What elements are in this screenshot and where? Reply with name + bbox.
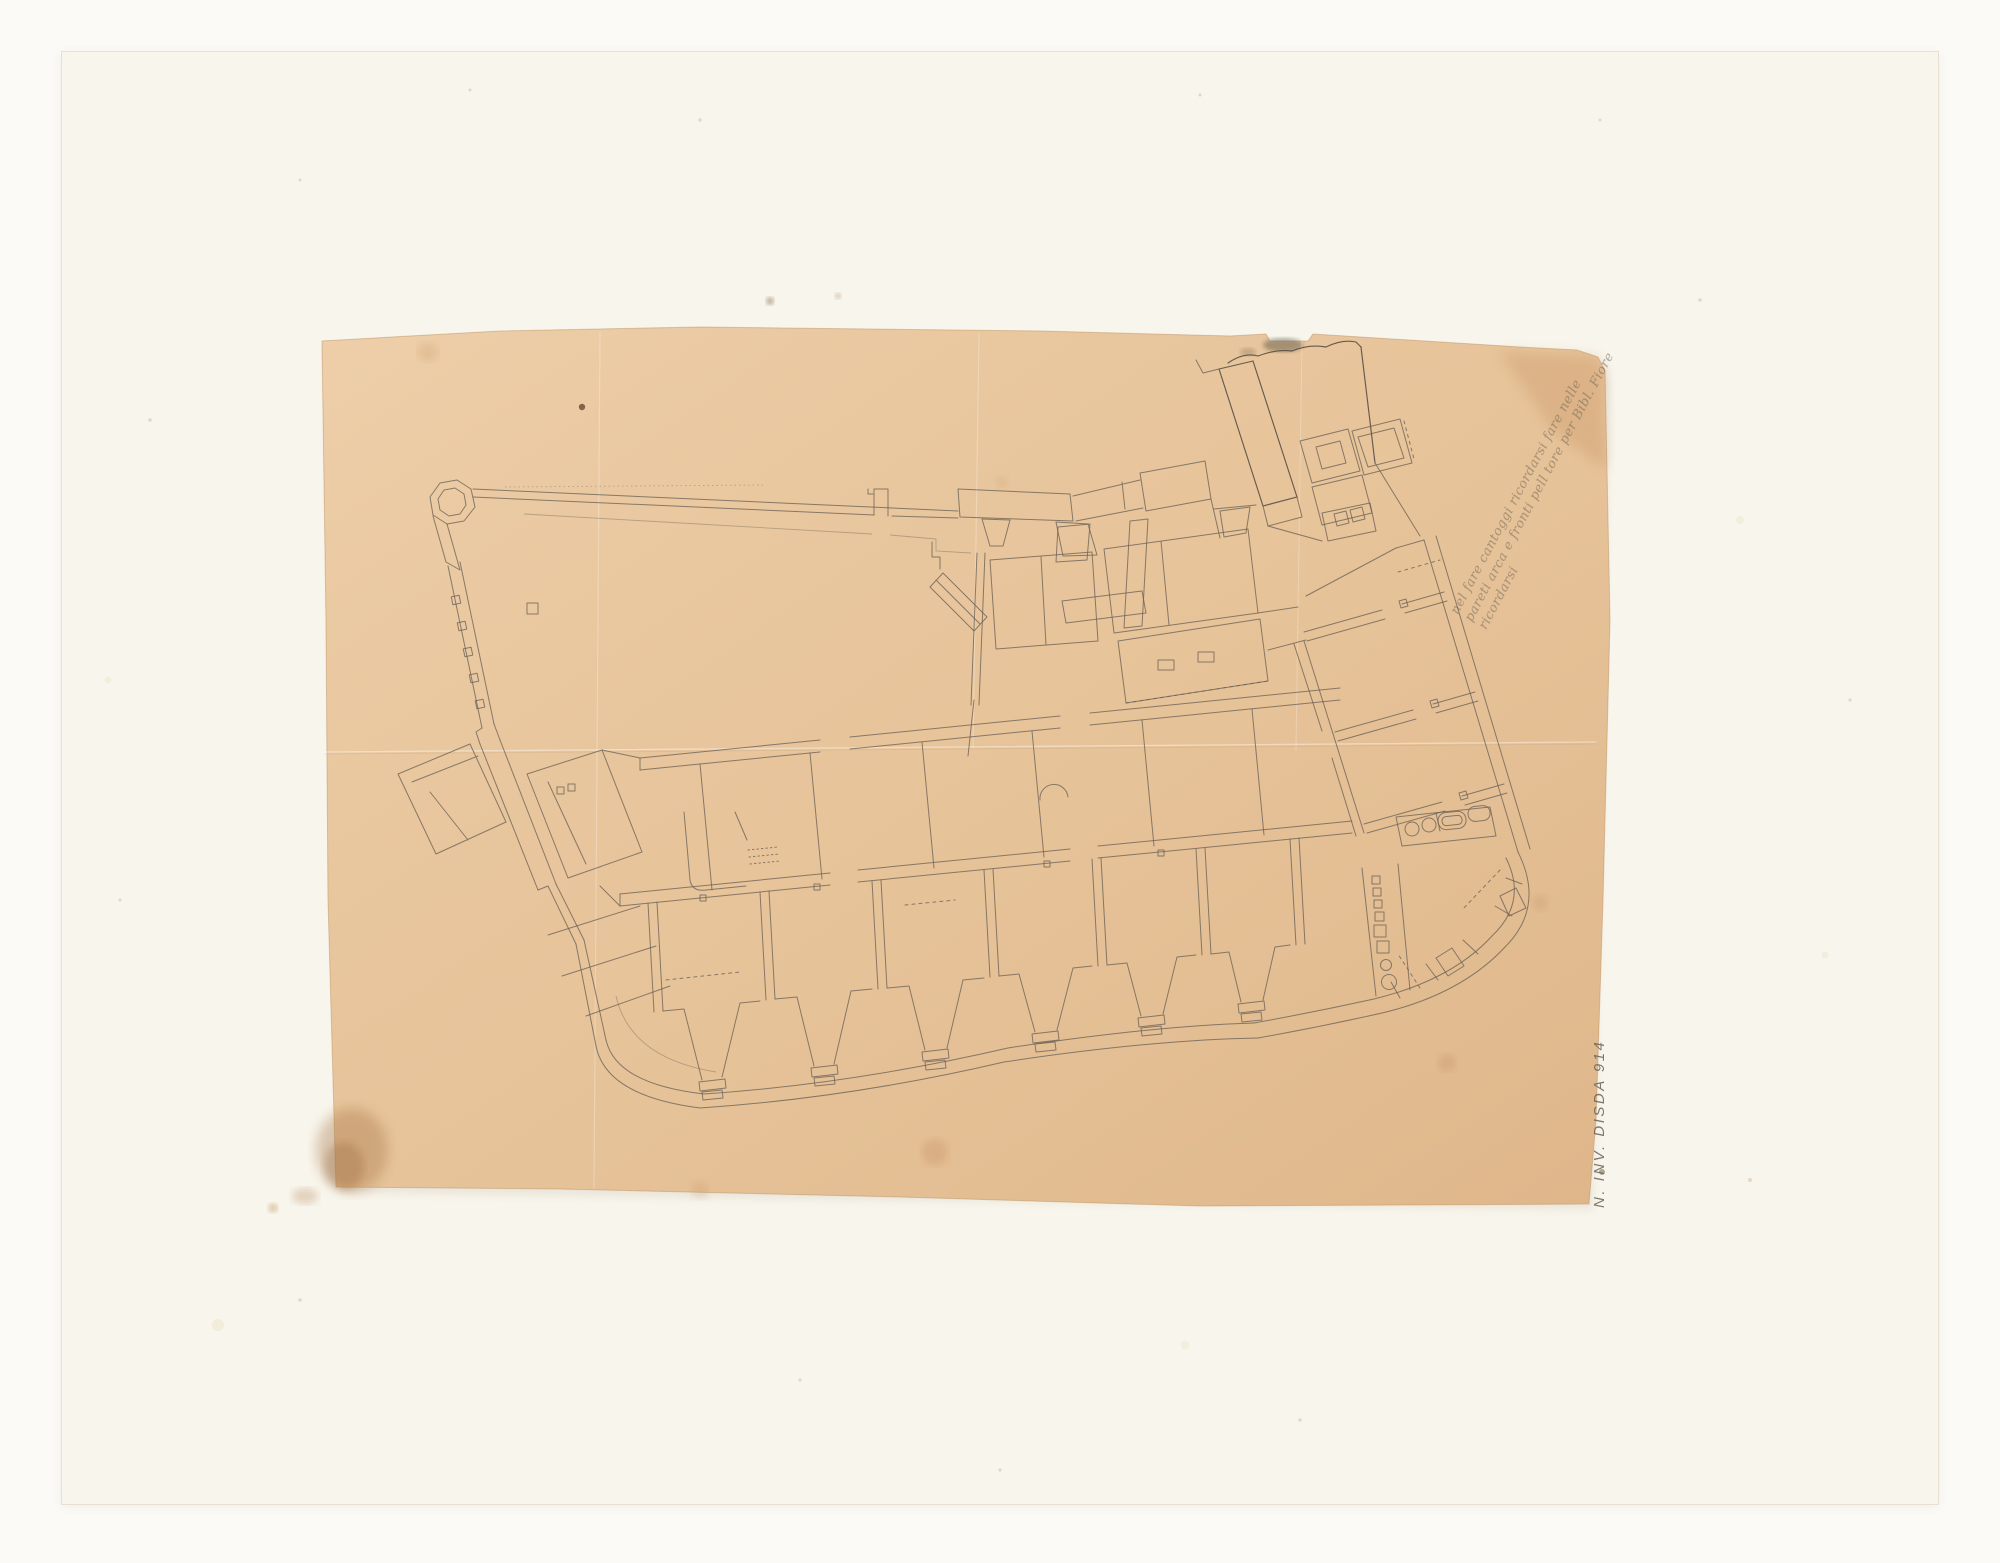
scanned-drawing-page: nel fare cantoggi ricordarsi fare nelle … (0, 0, 2000, 1563)
drawing-scan (0, 0, 2000, 1563)
inventory-mark: N. INV. DISDA 914 (1591, 1040, 1608, 1208)
drawing-sheet (322, 327, 1610, 1206)
